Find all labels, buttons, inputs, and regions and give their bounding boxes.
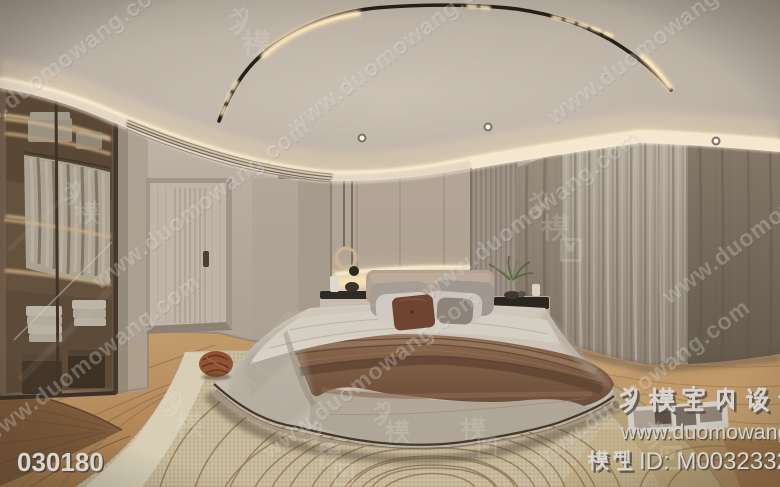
- svg-text:030180: 030180: [17, 447, 104, 477]
- svg-text:www.duomowang.com: www.duomowang.com: [620, 420, 780, 444]
- svg-text:ID: M0032332: ID: M0032332: [639, 448, 780, 475]
